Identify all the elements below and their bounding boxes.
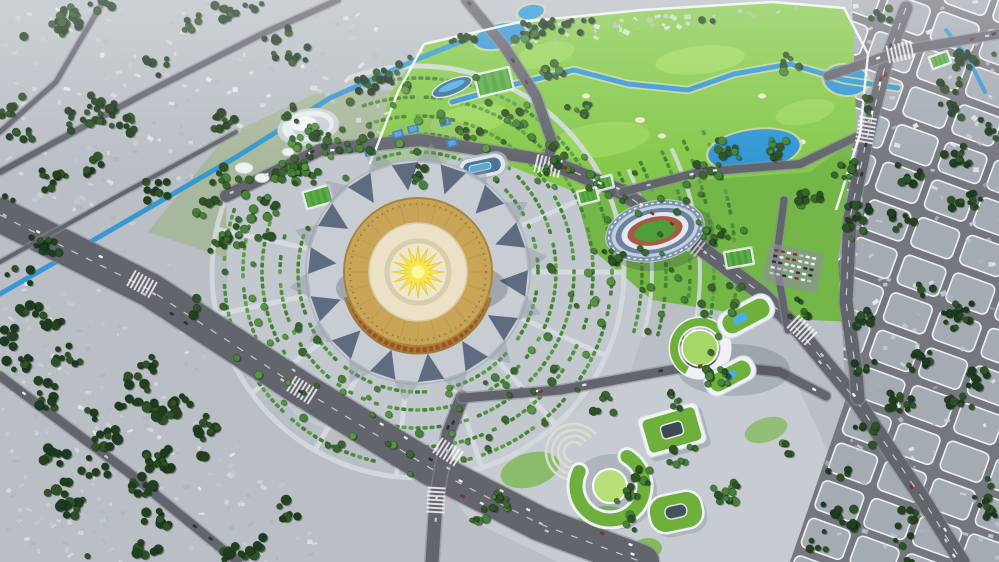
c-shaped-green-roof-building [569,454,657,530]
aerial-masterplan-render [0,0,999,562]
masterplan-svg [0,0,999,562]
atmospheric-haze [0,0,999,170]
atmosphere [0,0,999,170]
